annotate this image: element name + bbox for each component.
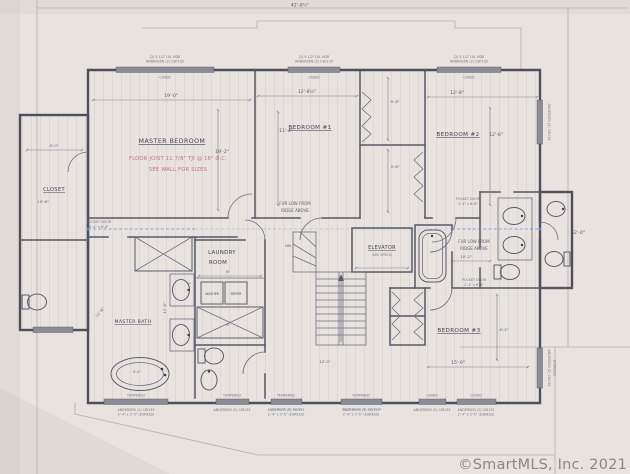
washer-label: WASHER [205, 292, 220, 296]
window [537, 100, 543, 144]
room-label-laundry-2: ROOM [209, 260, 227, 266]
window [288, 67, 340, 73]
floor-plan-drawing: 42'-0½" 52'-0" DN [0, 0, 630, 474]
window-spec: ANDERSEN (2) CW135 [414, 408, 451, 412]
window [437, 67, 501, 73]
window-spec: ANDERSEN (2) CW135 [547, 350, 551, 387]
dim-hall: 12'-0" [319, 359, 331, 364]
room-label-bedroom-3: BEDROOM #3 [437, 328, 480, 334]
joist-note-line2: SEE WALL FOR SIZES [149, 167, 207, 173]
dim-bedroom1-width: 12'-8½" [298, 88, 316, 95]
window-spec: ANDERSEN (2) CW135 [118, 408, 155, 412]
pocket-door-note: POCKET DOOR [87, 220, 112, 224]
window-tempered-label: TEMPERED [222, 394, 241, 398]
window-header: ANDERSEN (2) CW-135 [146, 60, 184, 64]
pocket-door-note: 2'-4" x 6'-8" [464, 283, 484, 287]
dim-bath-width: 10'-2" [460, 254, 472, 259]
fur-low-note: RIDGE ABOVE [460, 246, 488, 251]
pocket-door-note: 2'-4" x 6'-8" [458, 202, 478, 206]
dim-bedroom2-width: 12'-8" [450, 90, 464, 96]
stair-label: DN [285, 243, 291, 248]
pocket-door-note: 2'-4" x 6'-8" [89, 225, 109, 229]
dim-bedroom2-height: 12'-6" [489, 132, 503, 138]
room-label-closet: CLOSET [43, 187, 65, 193]
dim-master-width: 19'-0" [164, 93, 178, 99]
dim-laundry-c: 6' [226, 322, 229, 327]
fur-low-note: RIDGE ABOVE [281, 208, 309, 213]
window-spec: (EGRESS) [553, 360, 557, 376]
window-header: (2) 9 1/2" LVL HDR [299, 55, 330, 59]
dim-bedroom1-height: 11'-4" [279, 128, 293, 134]
window [341, 399, 382, 405]
window-header: ANDERSEN (2) CW-135 [295, 60, 333, 64]
window [271, 399, 302, 405]
window-spec: 2'-4" x 3'-5" (EGRESS) [343, 413, 379, 417]
dim-laundry-a: 7' [187, 281, 192, 284]
smartmls-watermark: ©SmartMLS, Inc. 2021 [458, 457, 627, 473]
window-cased-label: CASED [308, 76, 320, 80]
window-spec: 2'-4" x 3'-5" (EGRESS) [458, 413, 494, 417]
room-label-laundry-1: LAUNDRY [208, 250, 236, 256]
scanned-floor-plan: 42'-0½" 52'-0" DN [0, 0, 630, 474]
joist-note-line1: FLOOR JOIST 11 7/8" TJI @ 16" O.C. [129, 156, 227, 162]
window-spec: ANDERSEN (2) CW135 [214, 408, 251, 412]
window-header: ANDERSEN (2) CW-135 [450, 60, 488, 64]
pocket-door-note: POCKET DOOR [462, 278, 487, 282]
dim-bedroom3-height: 6'-2" [500, 327, 509, 332]
elevator-sublabel: (SEE SPECS) [372, 253, 392, 257]
fur-low-note: FUR LOW FROM [279, 201, 311, 206]
dim-laundry-b: 6' [226, 269, 229, 274]
dim-closet2: 9'-6" [391, 164, 400, 169]
dim-tub: 6'-0" [133, 370, 141, 374]
window-cased-label: CASED [463, 76, 475, 80]
room-label-master-bath: MASTER BATH [115, 319, 152, 325]
window-tempered-label: TEMPERED [351, 394, 370, 398]
dim-bedroom3-width: 15'-0" [451, 360, 465, 366]
room-label-bedroom-2: BEDROOM #2 [436, 132, 479, 138]
dim-master-bath-b: 12'-6" [162, 302, 167, 314]
window [216, 399, 249, 405]
room-label-master-bedroom: MASTER BEDROOM [139, 138, 206, 145]
window-spec: 2'-4" x 3'-5" (EGRESS) [268, 413, 304, 417]
room-label-bedroom-1: BEDROOM #1 [288, 125, 331, 131]
window-spec: ANDERSEN (2) CW135 [458, 408, 495, 412]
window [104, 399, 168, 405]
window-tempered-label: TEMPERED [276, 394, 295, 398]
window [419, 399, 446, 405]
window-header: (2) 9 1/2" LVL HDR [150, 55, 181, 59]
window [457, 399, 496, 405]
dim-closet1: 9'-6" [391, 99, 400, 104]
window-header: (2) 9 1/2" LVL HDR [454, 55, 485, 59]
dim-closet-width: 8'-0" [50, 143, 59, 148]
window-cased-label: CASED [426, 394, 438, 398]
window-spec: 2'-4" x 3'-5" (EGRESS) [118, 413, 154, 417]
window-tempered-label: TEMPERED [126, 394, 145, 398]
window [33, 327, 73, 333]
window [116, 67, 214, 73]
fur-low-note: FUR LOW FROM [458, 239, 490, 244]
window-cased-label: CASED [470, 394, 482, 398]
dryer-label: DRYER [231, 292, 242, 296]
dim-master-height: 19'-2" [215, 149, 229, 155]
room-label-elevator: ELEVATOR [368, 245, 396, 251]
window-spec: ANDERSEN (2) CW135 [547, 104, 551, 141]
window-cased-label: CASED [159, 76, 171, 80]
dim-overall-width: 42'-0½" [291, 2, 309, 9]
dim-closet-height: 19'-6" [37, 199, 49, 204]
pocket-door-note: POCKET DOOR [456, 197, 481, 201]
window [537, 348, 543, 388]
